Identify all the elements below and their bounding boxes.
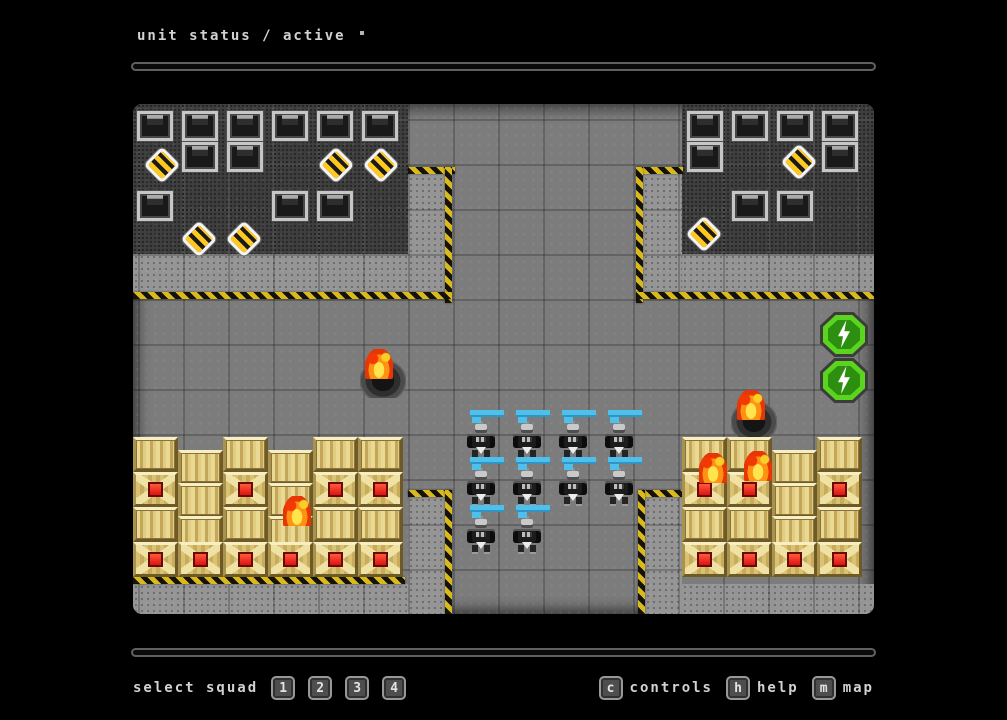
robot-body: [467, 481, 495, 495]
robot-body: [605, 434, 633, 448]
concrete-zone: [643, 170, 682, 299]
robot-body: [467, 529, 495, 543]
robot-legs: [517, 545, 537, 555]
metal-crate: [182, 142, 218, 172]
robot-unit[interactable]: [463, 517, 499, 555]
concrete-zone: [645, 497, 682, 614]
metal-crate: [732, 111, 768, 141]
wooden-crate: [133, 507, 178, 542]
select-squad-label: select squad: [133, 680, 258, 696]
hazard-stripe: [638, 490, 645, 614]
hazard-stripe: [445, 167, 452, 303]
wooden-crate-braced: [223, 542, 268, 577]
metal-crate: [777, 191, 813, 221]
robot-head: [475, 424, 487, 433]
metal-crate: [317, 191, 353, 221]
game-board: [133, 104, 874, 614]
map-shortcut: m map: [812, 676, 874, 700]
hazard-diamond-item: [145, 148, 179, 182]
help-key[interactable]: h: [726, 676, 750, 700]
footer-bar: select squad 1 2 3 4 c controls h help m…: [133, 676, 874, 700]
robot-unit[interactable]: [601, 422, 637, 460]
fire-sprite: [744, 451, 772, 481]
metal-crate: [137, 191, 173, 221]
metal-crate: [227, 111, 263, 141]
wooden-crate: [817, 437, 862, 472]
wooden-crate-braced: [772, 542, 817, 577]
fire-sprite: [699, 453, 727, 483]
metal-crate: [362, 111, 398, 141]
wooden-crate: [772, 483, 817, 518]
health-bar: [468, 505, 506, 519]
hazard-stripe: [133, 577, 405, 584]
wooden-crate-braced: [817, 542, 862, 577]
game-screen: { "header": { "title": "unit status / ac…: [0, 0, 1007, 720]
robot-head: [475, 471, 487, 480]
shortcuts-group: c controls h help m map: [599, 676, 874, 700]
status-header: unit status / active: [137, 28, 364, 44]
hazard-stripe: [133, 292, 452, 299]
metal-crate: [227, 142, 263, 172]
wooden-crate-braced: [313, 472, 358, 507]
energy-pickup[interactable]: [820, 358, 868, 403]
wooden-crate: [358, 437, 403, 472]
hazard-stripe: [636, 167, 683, 174]
wooden-crate: [358, 507, 403, 542]
controls-label: controls: [630, 680, 713, 696]
fire-sprite: [365, 349, 393, 379]
robot-unit[interactable]: [509, 422, 545, 460]
robot-legs: [609, 497, 629, 507]
health-bar: [468, 457, 506, 471]
health-bar: [560, 457, 598, 471]
robot-unit[interactable]: [555, 469, 591, 507]
metal-crate: [272, 111, 308, 141]
health-bar: [514, 505, 552, 519]
hazard-stripe: [636, 292, 874, 299]
robot-body: [559, 481, 587, 495]
robot-unit[interactable]: [509, 469, 545, 507]
robot-body: [513, 434, 541, 448]
metal-crate: [732, 191, 768, 221]
wooden-crate-braced: [313, 542, 358, 577]
wooden-crate: [223, 437, 268, 472]
wooden-crate: [772, 450, 817, 485]
robot-body: [605, 481, 633, 495]
wooden-crate-braced: [682, 542, 727, 577]
help-shortcut: h help: [726, 676, 799, 700]
hazard-diamond-item: [319, 148, 353, 182]
metal-crate: [317, 111, 353, 141]
hazard-stripe: [636, 167, 643, 303]
wooden-crate: [682, 507, 727, 542]
wooden-crate-braced: [358, 472, 403, 507]
fire-sprite: [737, 390, 765, 420]
metal-crate: [822, 142, 858, 172]
health-bar: [514, 457, 552, 471]
cursor-dot: [360, 31, 364, 35]
robot-head: [521, 424, 533, 433]
squad-select-group: select squad 1 2 3 4: [133, 676, 406, 700]
robot-body: [513, 529, 541, 543]
health-bar: [514, 410, 552, 424]
wooden-crate: [817, 507, 862, 542]
hazard-stripe: [445, 490, 452, 614]
hazard-diamond-item: [782, 145, 816, 179]
wooden-crate-braced: [133, 472, 178, 507]
bolt-icon: [834, 320, 854, 348]
health-bar: [468, 410, 506, 424]
robot-head: [567, 471, 579, 480]
hazard-diamond-item: [364, 148, 398, 182]
wooden-crate-braced: [268, 542, 313, 577]
wooden-crate: [268, 450, 313, 485]
robot-unit[interactable]: [509, 517, 545, 555]
energy-pickup[interactable]: [820, 312, 868, 357]
concrete-zone: [682, 584, 874, 614]
controls-key[interactable]: c: [599, 676, 623, 700]
robot-unit[interactable]: [601, 469, 637, 507]
metal-crate: [182, 111, 218, 141]
robot-body: [559, 434, 587, 448]
help-label: help: [757, 680, 799, 696]
map-key[interactable]: m: [812, 676, 836, 700]
page-title: unit status / active: [137, 28, 346, 44]
robot-legs: [471, 545, 491, 555]
wooden-crate: [133, 437, 178, 472]
metal-crate: [687, 111, 723, 141]
concrete-zone: [133, 584, 408, 614]
squad-key-1[interactable]: 1: [271, 676, 295, 700]
robot-body: [513, 481, 541, 495]
squad-key-3[interactable]: 3: [345, 676, 369, 700]
concrete-zone: [408, 170, 450, 299]
fire-sprite: [283, 496, 311, 526]
wooden-crate: [178, 483, 223, 518]
hazard-diamond-item: [687, 217, 721, 251]
wooden-crate-braced: [727, 542, 772, 577]
metal-crate: [687, 142, 723, 172]
hazard-diamond-item: [227, 222, 261, 256]
bolt-icon: [834, 366, 854, 394]
squad-key-4[interactable]: 4: [382, 676, 406, 700]
bottom-divider: [131, 648, 876, 657]
robot-head: [475, 519, 487, 528]
wooden-crate: [313, 437, 358, 472]
robot-head: [521, 471, 533, 480]
robot-unit[interactable]: [463, 422, 499, 460]
metal-crate: [777, 111, 813, 141]
robot-head: [521, 519, 533, 528]
health-bar: [606, 410, 644, 424]
wooden-crate: [727, 507, 772, 542]
metal-crate: [137, 111, 173, 141]
wooden-crate-braced: [133, 542, 178, 577]
robot-legs: [563, 497, 583, 507]
wooden-crate: [313, 507, 358, 542]
concrete-zone: [408, 497, 445, 614]
hazard-diamond-item: [182, 222, 216, 256]
wooden-crate-braced: [817, 472, 862, 507]
robot-unit[interactable]: [463, 469, 499, 507]
metal-crate: [822, 111, 858, 141]
health-bar: [606, 457, 644, 471]
robot-head: [613, 424, 625, 433]
controls-shortcut: c controls: [599, 676, 713, 700]
robot-head: [613, 471, 625, 480]
wooden-crate-braced: [358, 542, 403, 577]
wooden-crate-braced: [223, 472, 268, 507]
squad-key-2[interactable]: 2: [308, 676, 332, 700]
top-divider: [131, 62, 876, 71]
health-bar: [560, 410, 598, 424]
map-label: map: [843, 680, 874, 696]
wooden-crate: [178, 450, 223, 485]
wooden-crate: [223, 507, 268, 542]
robot-unit[interactable]: [555, 422, 591, 460]
robot-head: [567, 424, 579, 433]
robot-body: [467, 434, 495, 448]
metal-crate: [272, 191, 308, 221]
wooden-crate-braced: [178, 542, 223, 577]
